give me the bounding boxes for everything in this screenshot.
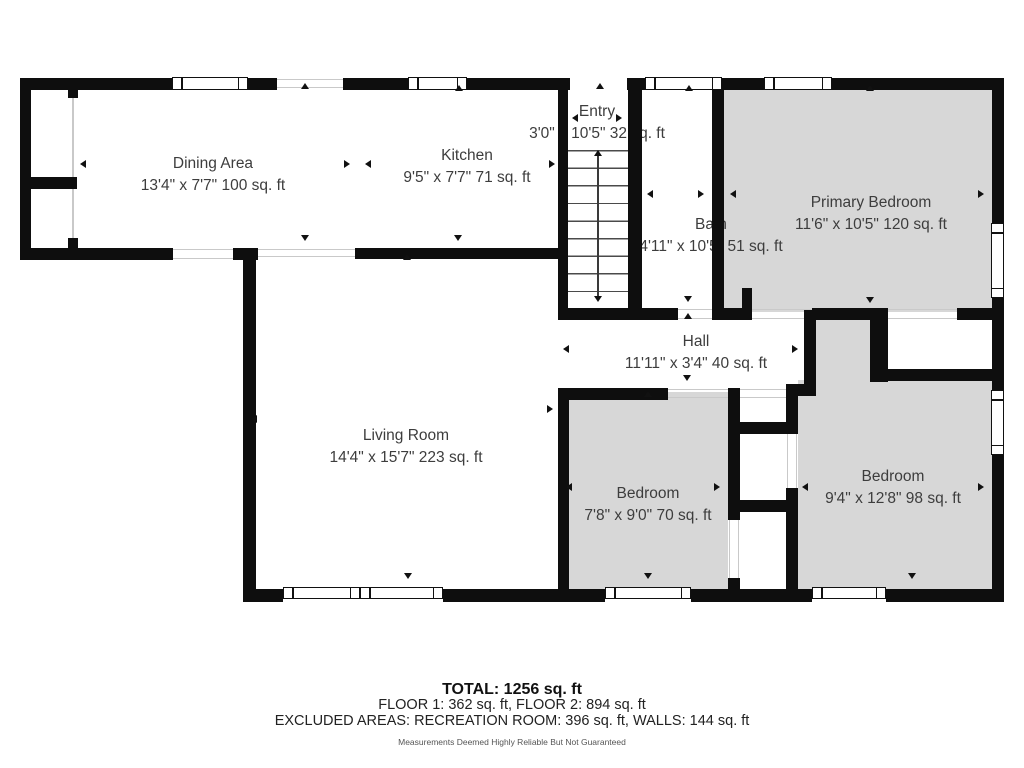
door-arrow-icon xyxy=(714,483,720,491)
opening-line xyxy=(173,258,233,259)
window-muntin xyxy=(681,588,683,598)
window-icon xyxy=(645,77,722,90)
wall xyxy=(870,308,888,382)
room-dims: 13'4" x 7'7" 100 sq. ft xyxy=(141,175,285,197)
wall xyxy=(722,78,764,90)
opening-line xyxy=(738,520,739,578)
door-arrow-icon xyxy=(908,573,916,579)
door-arrow-icon xyxy=(730,190,736,198)
door-arrow-icon xyxy=(594,296,602,302)
disclaimer-text: Measurements Deemed Highly Reliable But … xyxy=(0,737,1024,747)
opening-line xyxy=(787,434,788,488)
wall xyxy=(886,589,1004,602)
door-arrow-icon xyxy=(344,160,350,168)
wall xyxy=(243,248,256,602)
opening-line xyxy=(668,397,728,398)
door-arrow-icon xyxy=(978,483,984,491)
door-arrow-icon xyxy=(549,160,555,168)
room-name: Living Room xyxy=(329,425,482,447)
door-arrow-icon xyxy=(566,483,572,491)
room-fill xyxy=(816,315,878,387)
door-arrow-icon xyxy=(644,391,652,397)
floor-areas-text: FLOOR 1: 362 sq. ft, FLOOR 2: 894 sq. ft xyxy=(0,698,1024,714)
window-muntin xyxy=(992,288,1003,290)
window-icon xyxy=(991,390,1004,455)
wall xyxy=(343,78,408,90)
room-dims: 4'11" x 10'5" 51 sq. ft xyxy=(639,236,782,258)
opening-line xyxy=(752,318,812,319)
wall xyxy=(355,248,568,259)
window-muntin xyxy=(350,588,352,598)
opening-line xyxy=(678,309,712,310)
wall xyxy=(712,90,724,308)
wall xyxy=(992,78,1004,223)
window-muntin xyxy=(876,588,878,598)
window-muntin xyxy=(992,399,1003,401)
opening-line xyxy=(796,434,797,488)
window-muntin xyxy=(822,78,824,89)
wall xyxy=(467,78,570,90)
wall xyxy=(558,388,569,602)
window-icon xyxy=(605,587,691,599)
door-arrow-icon xyxy=(454,235,462,241)
wall xyxy=(992,455,1004,602)
door-arrow-icon xyxy=(866,297,874,303)
door-arrow-icon xyxy=(792,345,798,353)
room-name: Hall xyxy=(625,331,767,353)
wall xyxy=(627,78,645,90)
room-label-entry: Entry 3'0" x 10'5" 32 sq. ft xyxy=(529,101,665,145)
window-muntin xyxy=(992,232,1003,234)
door-arrow-icon xyxy=(647,190,653,198)
wall xyxy=(558,90,568,317)
opening-line xyxy=(740,389,786,390)
room-dims: 14'4" x 15'7" 223 sq. ft xyxy=(329,447,482,469)
room-dims: 9'4" x 12'8" 98 sq. ft xyxy=(825,488,961,510)
wall xyxy=(728,422,797,434)
door-arrow-icon xyxy=(80,160,86,168)
opening-line xyxy=(258,256,355,257)
room-dims: 11'11" x 3'4" 40 sq. ft xyxy=(625,353,767,375)
wall xyxy=(712,308,752,320)
window-icon xyxy=(172,77,248,90)
window-muntin xyxy=(238,78,240,89)
door-arrow-icon xyxy=(251,415,257,423)
door-arrow-icon xyxy=(684,313,692,319)
excluded-areas-text: EXCLUDED AREAS: RECREATION ROOM: 396 sq.… xyxy=(0,714,1024,730)
room-dims: 3'0" x 10'5" 32 sq. ft xyxy=(529,123,665,145)
wall xyxy=(728,500,798,512)
wall xyxy=(888,369,1004,381)
area-summary: TOTAL: 1256 sq. ft FLOOR 1: 362 sq. ft, … xyxy=(0,682,1024,747)
room-label-bedroom-1: Bedroom 7'8" x 9'0" 70 sq. ft xyxy=(584,483,711,527)
door-arrow-icon xyxy=(684,296,692,302)
stairs-direction-arrow xyxy=(597,156,599,300)
wall xyxy=(832,78,1004,90)
room-label-bedroom-2: Bedroom 9'4" x 12'8" 98 sq. ft xyxy=(825,466,961,510)
window-muntin xyxy=(773,78,775,89)
door-arrow-icon xyxy=(866,85,874,91)
room-label-dining-area: Dining Area 13'4" x 7'7" 100 sq. ft xyxy=(141,153,285,197)
door-arrow-icon xyxy=(455,85,463,91)
room-dims: 7'8" x 9'0" 70 sq. ft xyxy=(584,505,711,527)
door-arrow-icon xyxy=(596,83,604,89)
opening-line xyxy=(740,397,786,398)
window-muntin xyxy=(654,78,656,89)
door-arrow-icon xyxy=(685,85,693,91)
window-muntin xyxy=(417,78,419,89)
door-arrow-icon xyxy=(301,235,309,241)
wall xyxy=(20,248,173,260)
window-muntin xyxy=(712,78,714,89)
window-icon xyxy=(764,77,832,90)
window-muntin xyxy=(369,588,371,598)
door-arrow-icon xyxy=(616,114,622,122)
opening-line xyxy=(277,79,343,80)
opening-line xyxy=(258,249,355,250)
door-arrow-icon xyxy=(594,150,602,156)
window-muntin xyxy=(433,588,435,598)
wall xyxy=(248,78,277,90)
wall xyxy=(558,308,678,320)
door-arrow-icon xyxy=(547,405,553,413)
wall xyxy=(243,589,283,602)
door-arrow-icon xyxy=(698,190,704,198)
wall xyxy=(628,90,642,308)
room-name: Entry xyxy=(529,101,665,123)
opening-line xyxy=(888,309,957,310)
window-icon xyxy=(812,587,886,599)
room-label-bath: Bath 4'11" x 10'5" 51 sq. ft xyxy=(639,214,782,258)
wall xyxy=(68,88,78,98)
door-arrow-icon xyxy=(404,573,412,579)
total-area-text: TOTAL: 1256 sq. ft xyxy=(0,682,1024,698)
window-muntin xyxy=(821,588,823,598)
wall xyxy=(992,298,1004,390)
door-arrow-icon xyxy=(365,160,371,168)
room-dims: 11'6" x 10'5" 120 sq. ft xyxy=(795,214,947,236)
room-label-living-room: Living Room 14'4" x 15'7" 223 sq. ft xyxy=(329,425,482,469)
room-dims: 9'5" x 7'7" 71 sq. ft xyxy=(403,167,530,189)
room-name: Bath xyxy=(639,214,782,236)
door-arrow-icon xyxy=(978,190,984,198)
wall xyxy=(742,288,752,309)
room-name: Kitchen xyxy=(403,145,530,167)
window-muntin xyxy=(181,78,183,89)
room-name: Bedroom xyxy=(584,483,711,505)
opening-line xyxy=(668,389,728,390)
door-arrow-icon xyxy=(644,573,652,579)
wall xyxy=(20,78,31,260)
door-arrow-icon xyxy=(683,375,691,381)
window-icon xyxy=(283,587,360,599)
opening-line xyxy=(173,249,233,250)
window-muntin xyxy=(614,588,616,598)
room-name: Bedroom xyxy=(825,466,961,488)
door-arrow-icon xyxy=(563,345,569,353)
opening-line xyxy=(729,520,730,578)
door-arrow-icon xyxy=(572,114,578,122)
wall xyxy=(691,589,812,602)
opening-line xyxy=(752,309,812,310)
room-label-hall: Hall 11'11" x 3'4" 40 sq. ft xyxy=(625,331,767,375)
wall xyxy=(20,78,172,90)
opening-line xyxy=(888,318,957,319)
room-label-primary-bedroom: Primary Bedroom 11'6" x 10'5" 120 sq. ft xyxy=(795,192,947,236)
window-muntin xyxy=(292,588,294,598)
wall xyxy=(443,589,605,602)
door-arrow-icon xyxy=(301,83,309,89)
wall xyxy=(558,388,668,400)
opening-line xyxy=(72,98,74,238)
opening-line xyxy=(277,87,343,88)
room-label-kitchen: Kitchen 9'5" x 7'7" 71 sq. ft xyxy=(403,145,530,189)
door-arrow-icon xyxy=(802,483,808,491)
room-name: Primary Bedroom xyxy=(795,192,947,214)
room-name: Dining Area xyxy=(141,153,285,175)
wall xyxy=(20,177,77,189)
door-arrow-icon xyxy=(403,254,411,260)
floorplan-canvas: Dining Area 13'4" x 7'7" 100 sq. ft Kitc… xyxy=(0,0,1024,768)
window-icon xyxy=(360,587,443,599)
window-icon xyxy=(991,223,1004,298)
window-muntin xyxy=(992,445,1003,447)
